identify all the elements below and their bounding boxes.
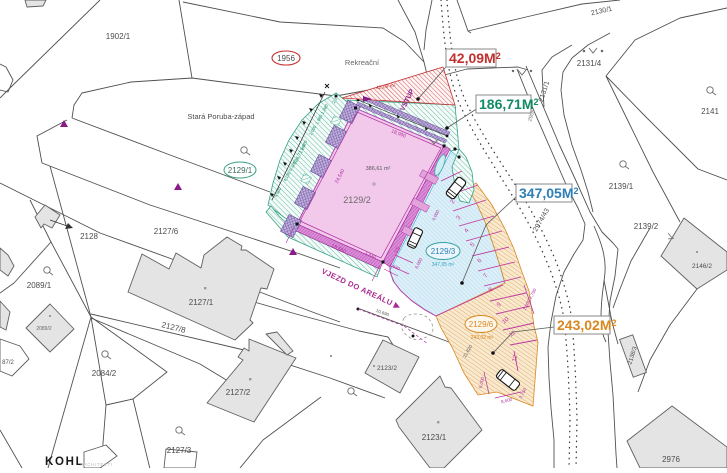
svg-text:2123/1: 2123/1 <box>422 433 447 442</box>
svg-text:243,02 m²: 243,02 m² <box>471 335 494 341</box>
svg-text:1956: 1956 <box>277 54 295 63</box>
svg-text:KOHL: KOHL <box>45 456 84 468</box>
svg-text:2129/2: 2129/2 <box>343 195 371 205</box>
svg-text:2131/4: 2131/4 <box>577 59 602 68</box>
svg-text:2089/2: 2089/2 <box>36 326 52 332</box>
svg-text:2129/1: 2129/1 <box>228 166 253 175</box>
svg-text:2084/2: 2084/2 <box>92 369 117 378</box>
svg-text:2139/1: 2139/1 <box>609 182 634 191</box>
svg-text:347,05 m²: 347,05 m² <box>432 262 455 268</box>
svg-text:386,61 m²: 386,61 m² <box>366 166 391 172</box>
svg-text:2129/6: 2129/6 <box>469 320 494 329</box>
svg-text:243,02M2: 243,02M2 <box>557 317 617 333</box>
svg-text:2127/2: 2127/2 <box>226 388 251 397</box>
svg-text:2127/6: 2127/6 <box>154 227 179 236</box>
svg-text:1902/1: 1902/1 <box>106 32 131 41</box>
svg-text:ARCHITEKTI: ARCHITEKTI <box>80 462 113 467</box>
svg-text:87/2: 87/2 <box>2 360 14 366</box>
svg-text:347,05M2: 347,05M2 <box>519 185 579 201</box>
svg-text:186,71M2: 186,71M2 <box>479 96 539 112</box>
svg-text:2129/3: 2129/3 <box>431 247 456 256</box>
svg-text:Rekreační: Rekreační <box>345 58 380 67</box>
svg-text:2976: 2976 <box>662 455 680 464</box>
svg-text:2089/1: 2089/1 <box>27 281 52 290</box>
svg-text:2141: 2141 <box>701 107 719 116</box>
svg-text:2127/1: 2127/1 <box>189 298 214 307</box>
svg-text:2127/3: 2127/3 <box>167 446 192 455</box>
svg-text:Stará Poruba-západ: Stará Poruba-západ <box>187 112 254 121</box>
svg-text:2139/2: 2139/2 <box>634 222 659 231</box>
svg-text:2123/2: 2123/2 <box>377 365 397 372</box>
svg-text:2146/2: 2146/2 <box>692 263 712 270</box>
svg-text:42,09M2: 42,09M2 <box>449 50 501 66</box>
svg-text:2128: 2128 <box>80 232 98 241</box>
